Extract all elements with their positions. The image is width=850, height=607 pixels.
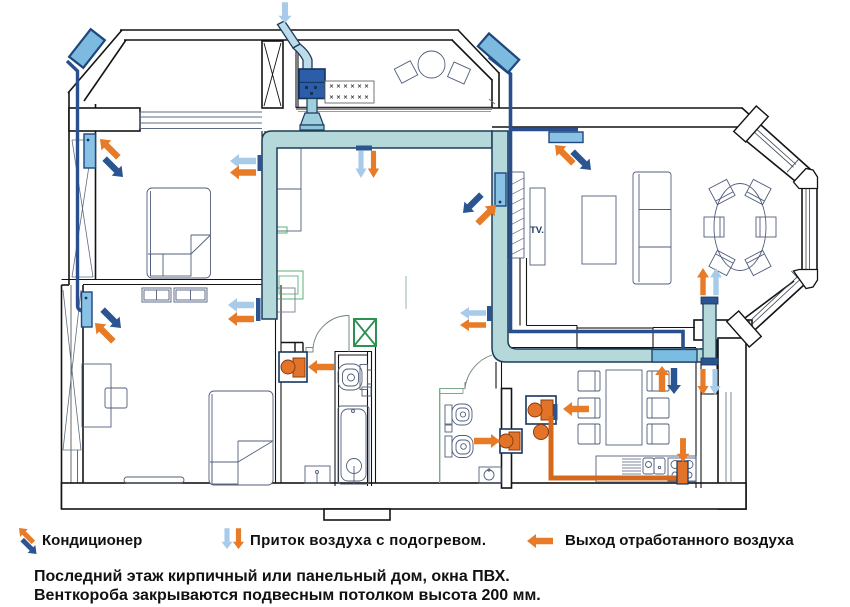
svg-text:TV.: TV. <box>530 225 544 236</box>
svg-text:Кондиционер: Кондиционер <box>42 532 142 549</box>
svg-text:Выход отработанного воздуха: Выход отработанного воздуха <box>565 532 794 549</box>
svg-text:Венткороба закрываются подвесн: Венткороба закрываются подвесным потолко… <box>34 587 541 604</box>
svg-text:Приток воздуха с подогревом.: Приток воздуха с подогревом. <box>250 532 486 549</box>
svg-text:Последний этаж кирпичный или п: Последний этаж кирпичный или панельный д… <box>34 568 510 585</box>
